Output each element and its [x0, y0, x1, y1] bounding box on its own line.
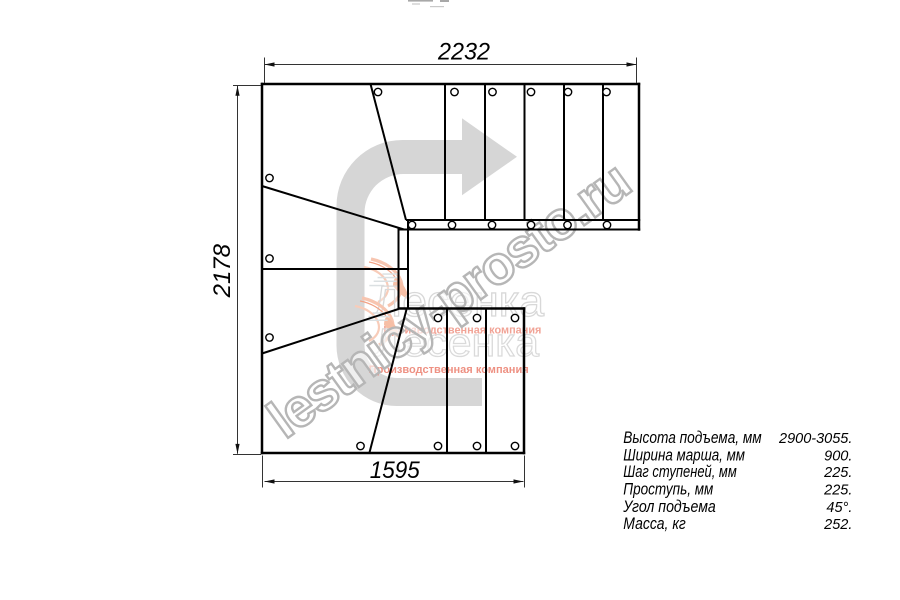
svg-text:252.: 252. [823, 517, 852, 533]
svg-text:900.: 900. [824, 448, 852, 464]
svg-text:Ширина марша, мм: Ширина марша, мм [623, 446, 745, 464]
svg-text:2900-3055.: 2900-3055. [778, 431, 852, 447]
svg-text:225.: 225. [823, 483, 852, 499]
svg-text:Масса, кг: Масса, кг [623, 515, 686, 533]
svg-text:Шаг ступеней, мм: Шаг ступеней, мм [623, 463, 736, 481]
svg-text:Высота подъема, мм: Высота подъема, мм [623, 429, 761, 447]
svg-text:Угол подъема: Угол подъема [622, 498, 715, 516]
svg-text:45°.: 45°. [826, 500, 852, 516]
svg-text:Проступь, мм: Проступь, мм [623, 481, 713, 499]
svg-text:225.: 225. [823, 465, 852, 481]
svg-text:2232: 2232 [437, 39, 490, 66]
svg-text:1595: 1595 [370, 457, 421, 484]
svg-text:2178: 2178 [209, 243, 236, 298]
